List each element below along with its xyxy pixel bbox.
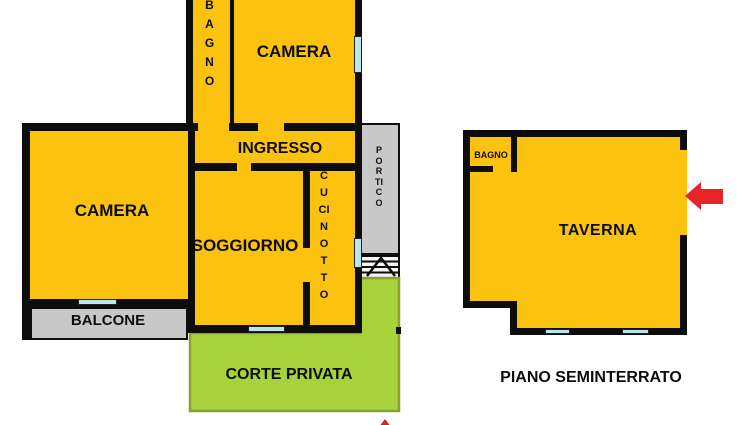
- wall-taverna-right-lower: [680, 235, 687, 335]
- room-label-bagno: BAGNO: [203, 0, 216, 91]
- room-label-portico: PORTICO: [374, 145, 384, 208]
- room-label-bagno-basement: BAGNO: [470, 150, 512, 160]
- wall-taverna-step-h: [463, 301, 517, 308]
- wall-ingresso-top-b: [229, 123, 258, 131]
- wall-taverna-top: [463, 130, 687, 137]
- room-corte-privata: [188, 276, 402, 414]
- wall-ingresso-top-c: [284, 123, 362, 131]
- wall-camera-right-upper: [355, 0, 362, 36]
- up-arrow-marker-icon: [376, 419, 394, 425]
- window-marker: [354, 238, 362, 268]
- wall-outer-right: [355, 123, 362, 325]
- room-label-ingresso: INGRESSO: [219, 140, 341, 158]
- stairs-icon: [362, 255, 400, 278]
- window-marker: [78, 299, 117, 305]
- window-marker: [248, 326, 285, 332]
- wall-ingresso-bottom-a: [188, 163, 237, 171]
- wall-taverna-bagno-h: [470, 166, 493, 172]
- room-label-soggiorno: SOGGIORNO: [183, 236, 307, 256]
- wall-outer-left: [22, 123, 30, 340]
- entrance-arrow-shaft: [700, 189, 723, 204]
- window-marker: [545, 329, 570, 334]
- room-label-cucinotto: CUCINOTTO: [318, 168, 330, 304]
- window-marker: [354, 36, 362, 73]
- wall-taverna-bottom: [510, 328, 687, 335]
- room-label-taverna: TAVERNA: [528, 222, 668, 240]
- wall-stub: [396, 327, 401, 334]
- wall-ingresso-top-a: [22, 123, 198, 131]
- entrance-arrow-icon: [685, 182, 701, 210]
- stairs-direction-mark: [362, 255, 400, 278]
- notch-cutout: [463, 308, 510, 335]
- room-label-camera-left: CAMERA: [52, 201, 172, 221]
- wall-bagno-camera-divider: [230, 0, 234, 123]
- wall-taverna-left: [463, 130, 470, 308]
- floor-caption: PIANO SEMINTERRATO: [491, 369, 691, 387]
- window-marker: [622, 329, 649, 334]
- wall-bagno-left: [186, 0, 193, 131]
- floor-plan: BAGNO CAMERA INGRESSO CAMERA SOGGIORNO C…: [0, 0, 750, 425]
- room-label-camera-top: CAMERA: [244, 42, 344, 62]
- wall-taverna-right-upper: [680, 130, 687, 150]
- room-label-corte-privata: CORTE PRIVATA: [203, 366, 375, 384]
- room-label-balcone: BALCONE: [48, 312, 168, 329]
